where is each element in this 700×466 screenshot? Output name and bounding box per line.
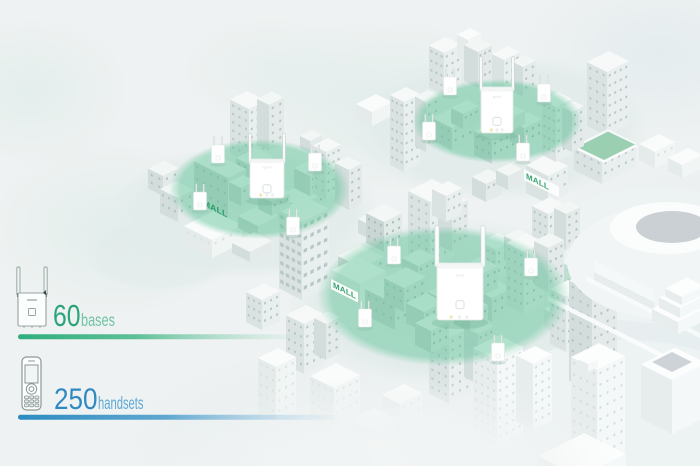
svg-text:bases: bases <box>81 310 115 330</box>
svg-text:250: 250 <box>54 383 98 416</box>
svg-text:handsets: handsets <box>98 393 144 413</box>
svg-text:aplink: aplink <box>493 95 502 99</box>
svg-text:60: 60 <box>53 299 81 333</box>
svg-text:aplink: aplink <box>456 274 465 278</box>
svg-text:aplink: aplink <box>263 165 272 169</box>
